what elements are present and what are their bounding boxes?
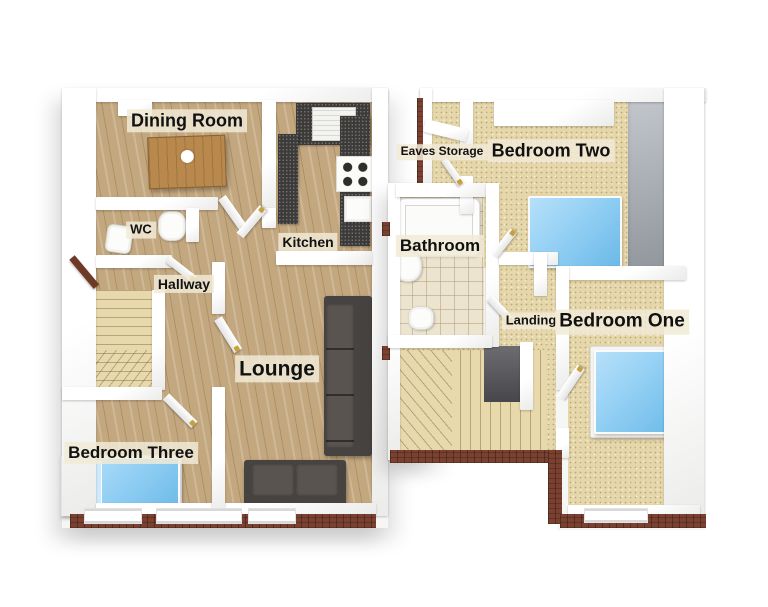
floorplan-canvas: Dining Room WC Hallway Kitchen Lounge Be… xyxy=(0,0,768,607)
bathroom-toilet xyxy=(408,306,434,330)
room-label-lounge: Lounge xyxy=(235,355,319,382)
stairwell-void xyxy=(484,346,522,402)
room-label-hallway: Hallway xyxy=(154,275,214,293)
wall-bathroom-bottom xyxy=(388,335,492,348)
wall-bedroom-two-bottom xyxy=(499,252,558,265)
room-label-wc: WC xyxy=(126,222,156,239)
wall-bathroom-right xyxy=(486,183,499,347)
window-bedroom-one xyxy=(584,508,648,523)
door-frame-mark-lower xyxy=(382,346,390,360)
room-label-bathroom: Bathroom xyxy=(396,235,484,257)
first-wall-protrusion xyxy=(494,100,614,126)
room-label-dining-room: Dining Room xyxy=(127,109,247,132)
room-label-bedroom-three: Bedroom Three xyxy=(64,442,198,464)
wall-bedrooms-divider xyxy=(556,266,686,280)
stairwell-wall xyxy=(520,342,533,410)
first-outer-wall-right xyxy=(664,88,704,520)
sloped-eaves-wall xyxy=(628,100,666,280)
wall-landing-stub xyxy=(534,252,547,296)
stairwell-slab-edge xyxy=(390,450,560,463)
room-label-kitchen: Kitchen xyxy=(278,233,337,251)
door-frame-mark-upper xyxy=(382,222,390,236)
wall-bathroom-top xyxy=(396,183,492,197)
corner-slab-edge xyxy=(548,450,562,524)
room-label-bedroom-two: Bedroom Two xyxy=(488,139,615,162)
room-label-landing: Landing xyxy=(502,313,561,330)
room-label-bedroom-one: Bedroom One xyxy=(555,310,689,335)
stair-winder-down xyxy=(398,350,452,452)
first-floor-plan xyxy=(0,0,768,607)
room-label-eaves-storage: Eaves Storage xyxy=(397,144,488,160)
